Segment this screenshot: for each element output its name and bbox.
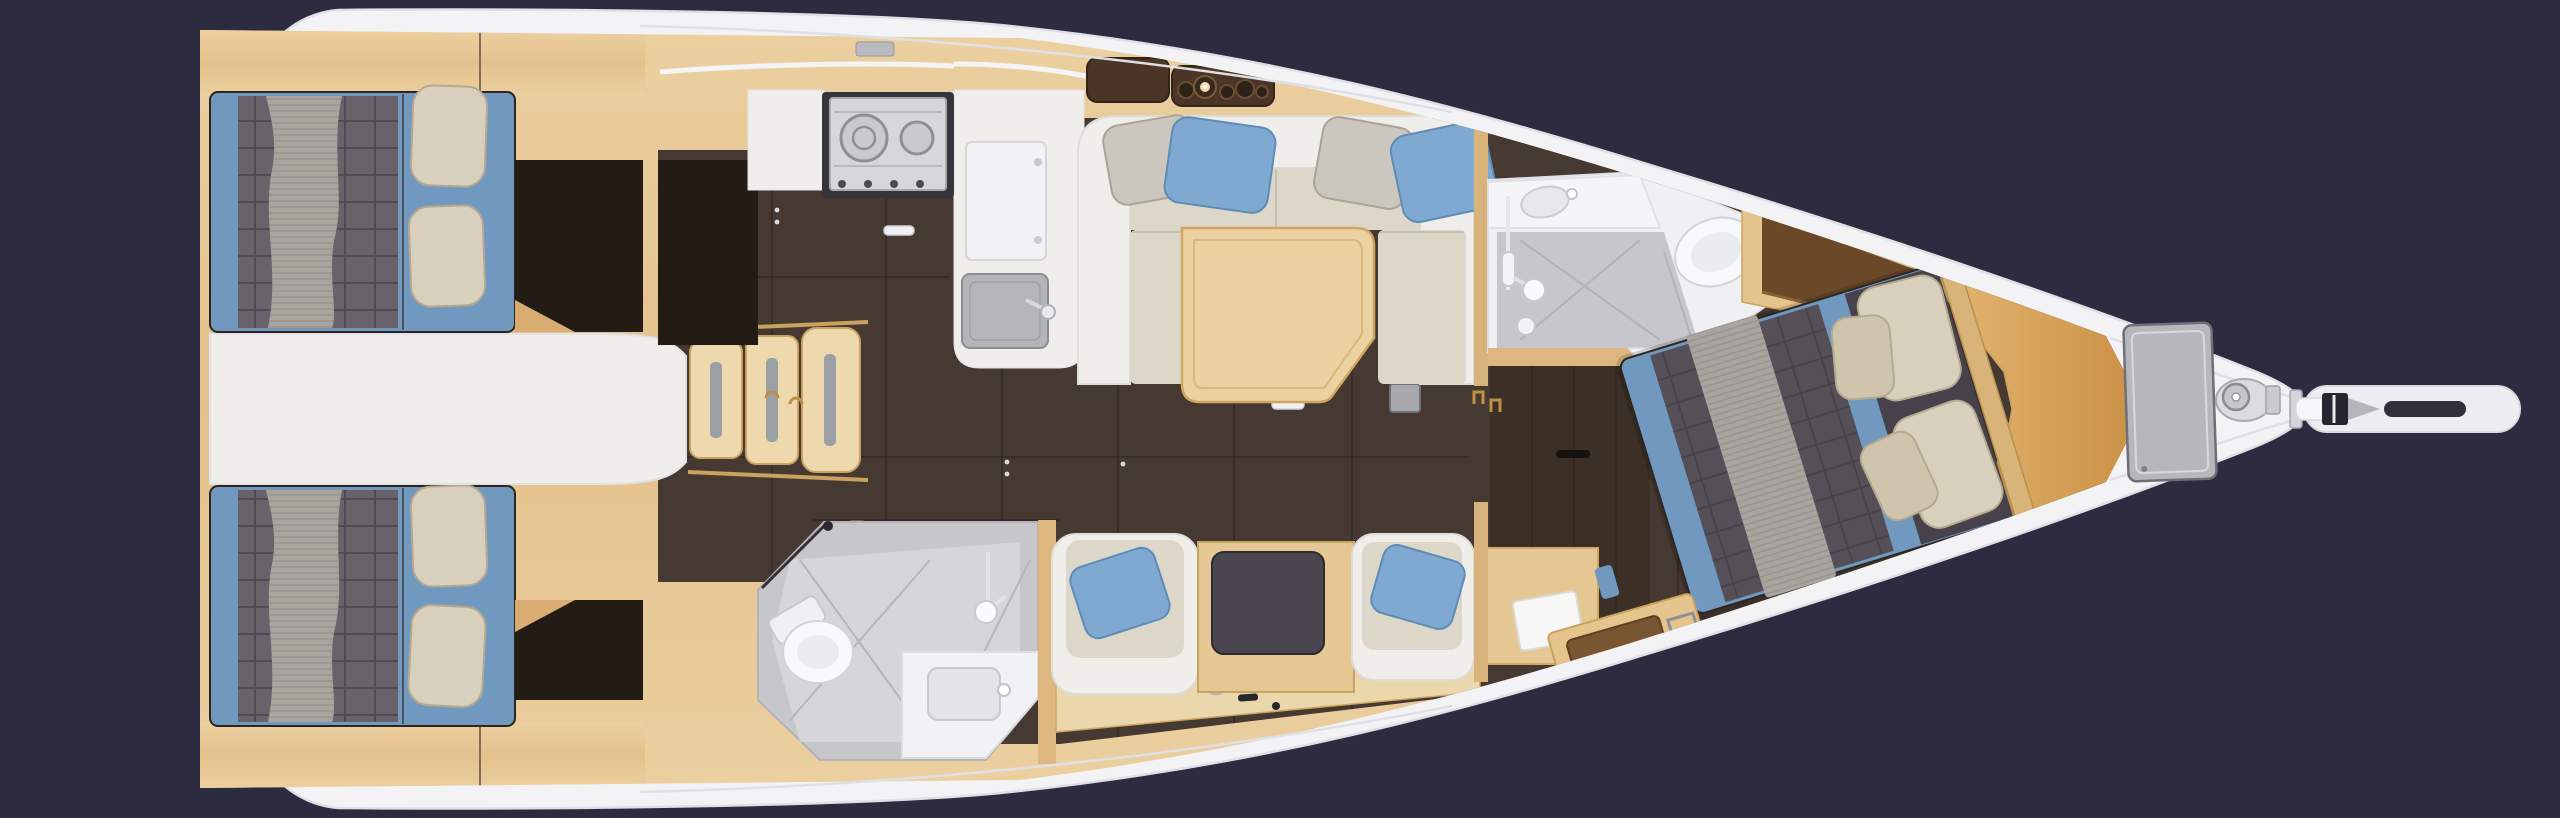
bottle-holder [1256, 86, 1268, 98]
mixer-handle [1502, 252, 1515, 286]
burner-small [901, 122, 933, 154]
chart-table [1198, 542, 1354, 692]
basin-faucet [998, 684, 1010, 696]
bottle-holder [1220, 85, 1234, 99]
blue-pillow [1163, 115, 1278, 215]
armchair-forward-facing [1352, 534, 1474, 680]
companionway-steps [690, 328, 860, 472]
step-tread [824, 354, 836, 446]
step-tread [710, 362, 722, 438]
galley-sink [962, 274, 1055, 348]
faucet-base [1041, 305, 1055, 319]
bottle-holder [1236, 80, 1254, 98]
basin-faucet [1567, 189, 1577, 199]
shower-head [1523, 279, 1545, 301]
chain-stopper [2266, 386, 2280, 414]
sink-basin [962, 274, 1048, 348]
engine-box [210, 334, 686, 484]
toilet-seat [797, 635, 839, 669]
step-tread [766, 358, 778, 442]
vent-grille [856, 42, 894, 56]
bottle-holder [1178, 82, 1194, 98]
latch-dot [1272, 702, 1280, 710]
port-entry-wardrobe [658, 160, 758, 345]
yacht-floorplan-stage [0, 0, 2560, 818]
stove [822, 92, 954, 198]
wash-basin [928, 668, 1000, 720]
bowsprit [2296, 386, 2520, 432]
bowsprit-slot [2384, 401, 2466, 417]
windlass-cap [2232, 393, 2240, 401]
dining-table [1182, 228, 1374, 402]
headboard-locker [200, 722, 645, 788]
seat-cushion-right [1378, 230, 1466, 384]
hatch-panel [2123, 323, 2216, 482]
floor-hatch-slot [1556, 450, 1590, 458]
latch [1238, 693, 1258, 701]
blanket-stripes [266, 490, 342, 722]
bulkhead-upper [1474, 118, 1488, 386]
bulkhead-lower [1474, 502, 1488, 682]
headboard-locker [200, 30, 645, 96]
sink-counter [1488, 175, 1660, 228]
blanket-stripes [266, 96, 342, 328]
floor-hatch-handle [884, 226, 914, 235]
fridge-hinge [1034, 236, 1042, 244]
pillow [407, 604, 486, 708]
burner-large [841, 115, 887, 161]
shower-drain [1517, 317, 1535, 335]
anchor-locker-hatch [2123, 323, 2216, 482]
armchair-aft-facing [1052, 534, 1198, 694]
mast-step [1390, 384, 1420, 412]
aft-head [758, 520, 1056, 764]
fridge-lid [966, 142, 1046, 260]
chart-table-top [1212, 552, 1324, 654]
accent-pillow [1830, 314, 1895, 401]
pillow [410, 85, 487, 188]
lamp-core [1203, 85, 1207, 89]
wardrobe-panel [515, 160, 643, 332]
yacht-floorplan [0, 0, 2560, 818]
aft-cabin-port [200, 30, 645, 332]
salon [1078, 113, 1500, 402]
pillow [410, 485, 487, 588]
door-hinge [823, 521, 833, 531]
counter-left [748, 90, 824, 190]
shower-head [975, 601, 997, 623]
fridge-hinge [1034, 158, 1042, 166]
pillow [408, 205, 485, 308]
